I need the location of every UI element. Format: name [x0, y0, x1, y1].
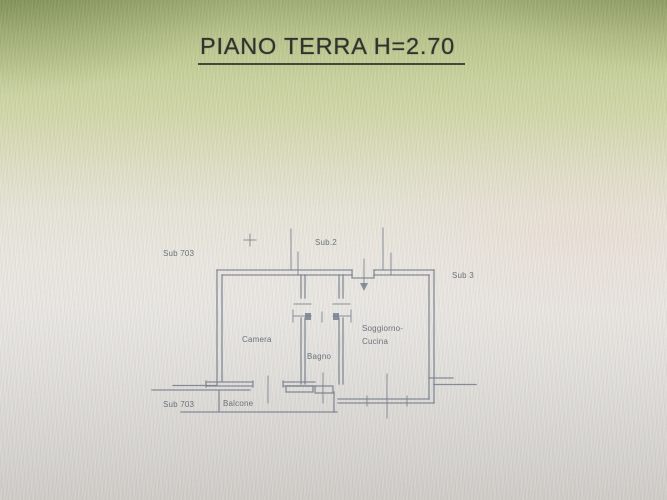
- window-marks: [367, 374, 407, 418]
- step-left: [286, 386, 313, 392]
- left-wall: [217, 270, 222, 385]
- step-right: [315, 386, 333, 393]
- boundary-lines-top: [291, 228, 391, 275]
- plan-labels: Sub 703 Sub.2 Sub 3 Camera Bagno Soggior…: [163, 238, 474, 409]
- floor-plan-drawing: Sub 703 Sub.2 Sub 3 Camera Bagno Soggior…: [0, 0, 667, 500]
- plan-walls: [152, 270, 476, 412]
- label-balcone: Balcone: [223, 399, 254, 408]
- label-sub3: Sub 3: [452, 271, 474, 280]
- label-cucina: Cucina: [362, 337, 388, 346]
- label-sub703-top: Sub 703: [163, 249, 195, 258]
- right-wall: [429, 270, 434, 403]
- label-sub2: Sub.2: [315, 238, 337, 247]
- right-boundary-stubs: [429, 378, 476, 385]
- door-hinge-block-left: [305, 313, 311, 320]
- photographed-screen: PIANO TERRA H=2.70: [0, 0, 667, 500]
- label-sub703-bottom: Sub 703: [163, 400, 195, 409]
- plan-marks: [244, 228, 407, 418]
- interior-wall-stubs: [301, 275, 343, 298]
- entrance-recess: [352, 270, 374, 278]
- label-soggiorno: Soggiorno-: [362, 324, 403, 333]
- label-bagno: Bagno: [307, 352, 331, 361]
- label-camera: Camera: [242, 335, 272, 344]
- door-hinge-block-right: [333, 313, 339, 320]
- door-hinge-marks: [293, 310, 351, 322]
- bagno-walls: [301, 318, 343, 384]
- plan-fills: [305, 283, 368, 320]
- soggiorno-bottom-wall: [334, 392, 434, 412]
- survey-cross-mark: [244, 234, 256, 246]
- entrance-arrow-head: [360, 283, 368, 291]
